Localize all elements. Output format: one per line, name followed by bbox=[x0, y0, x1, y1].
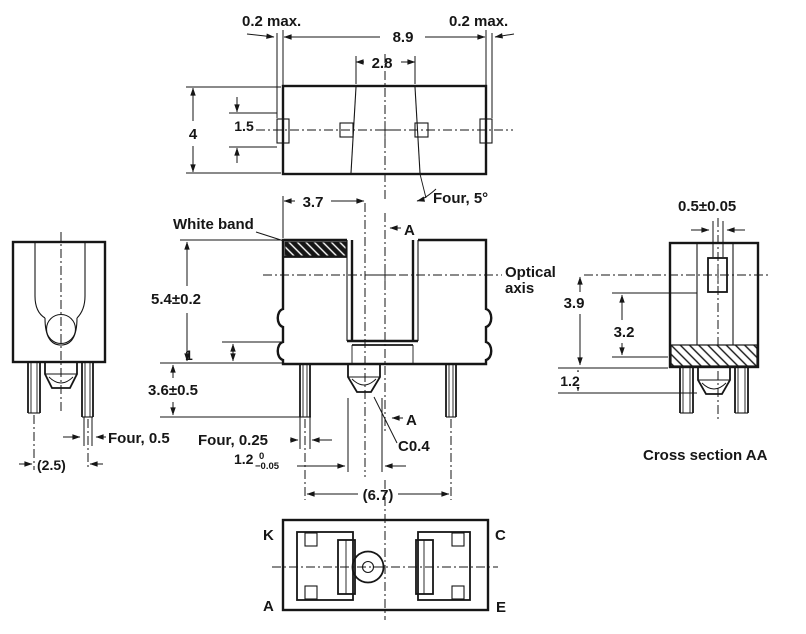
bottom-view: K C A E bbox=[263, 480, 506, 620]
dim-lead-width-front: Four, 0.25 bbox=[198, 417, 332, 449]
dim-lead-pitch: (2.5) bbox=[19, 415, 103, 473]
photomicrosensor-dimension-drawing: 8.9 0.2 max. 0.2 max. 2.8 4 bbox=[0, 0, 806, 634]
white-band-area bbox=[285, 242, 346, 256]
dim-axis-height: 3.9 bbox=[558, 277, 668, 368]
front-view: White band 3.7 A A C0.4 5.4±0.2 bbox=[148, 194, 556, 504]
dim-lead-span: (6.7) bbox=[305, 419, 451, 504]
side-body-outline bbox=[13, 242, 105, 362]
dim-axis-height-label: 3.9 bbox=[564, 295, 585, 312]
dim-step-label: 1 bbox=[185, 347, 193, 363]
section-marker-bottom-label: A bbox=[406, 412, 417, 429]
dim-lead-span-label: (6.7) bbox=[363, 487, 394, 504]
side-view: (2.5) Four, 0.5 bbox=[13, 232, 170, 473]
label-optical-axis-line2: axis bbox=[505, 280, 534, 297]
section-center-boss bbox=[698, 367, 730, 394]
dim-body-height: 5.4±0.2 bbox=[151, 240, 281, 361]
dim-band-height-label: 1.2 bbox=[560, 373, 580, 389]
side-leg-right bbox=[82, 362, 93, 417]
draft-line-extension bbox=[420, 174, 426, 198]
dim-overall-width-label: 8.9 bbox=[393, 29, 414, 46]
dim-lead-pitch-label: (2.5) bbox=[37, 457, 66, 473]
front-center-boss bbox=[348, 364, 380, 392]
dim-aperture-width: 0.5±0.05 bbox=[678, 198, 745, 230]
section-marker-bottom: A bbox=[392, 412, 417, 429]
dim-clearance-right-label: 0.2 max. bbox=[449, 13, 508, 30]
label-optical-axis: Optical axis bbox=[505, 264, 556, 297]
dim-body-height-label: 5.4±0.2 bbox=[151, 291, 201, 308]
front-leg-left bbox=[300, 364, 310, 417]
dim-clearance-left-label: 0.2 max. bbox=[242, 13, 301, 30]
dim-aperture-width-label: 0.5±0.05 bbox=[678, 198, 736, 215]
front-leg-right bbox=[446, 364, 456, 417]
terminal-label-A: A bbox=[263, 598, 274, 615]
dim-band-height: 1.2 bbox=[558, 370, 697, 393]
dim-boss-tol-lower: −0.05 bbox=[255, 461, 280, 472]
section-hatch-band bbox=[671, 345, 757, 366]
section-caption: Cross section AA bbox=[643, 447, 768, 464]
dim-clearance-right: 0.2 max. bbox=[449, 13, 514, 118]
note-draft-angle-label: Four, 5° bbox=[433, 190, 488, 207]
top-view: 8.9 0.2 max. 0.2 max. 2.8 4 bbox=[186, 13, 514, 207]
dim-lead-width-front-label: Four, 0.25 bbox=[198, 432, 268, 449]
section-marker-top: A bbox=[390, 222, 415, 239]
note-draft-angle: Four, 5° bbox=[417, 189, 488, 207]
terminal-label-E: E bbox=[496, 599, 506, 616]
dim-lead-width-side-label: Four, 0.5 bbox=[108, 430, 170, 447]
side-leg-left bbox=[28, 362, 40, 413]
dim-lead-length: 3.6±0.5 bbox=[148, 365, 311, 417]
dim-step: 1 bbox=[185, 342, 282, 363]
terminal-label-C: C bbox=[495, 527, 506, 544]
section-marker-top-label: A bbox=[404, 222, 415, 239]
dim-lead-width-side: Four, 0.5 bbox=[63, 417, 170, 447]
note-chamfer-label: C0.4 bbox=[398, 438, 430, 455]
section-leg-right bbox=[735, 367, 748, 413]
section-leg-left bbox=[680, 367, 693, 413]
dim-lead-length-label: 3.6±0.5 bbox=[148, 382, 198, 399]
dim-emitter-offset-label: 3.7 bbox=[303, 194, 324, 211]
drawing-canvas: 8.9 0.2 max. 0.2 max. 2.8 4 bbox=[0, 0, 806, 634]
dim-inner-height-label: 3.2 bbox=[614, 324, 635, 341]
dim-boss-nominal-label: 1.2 bbox=[234, 451, 254, 467]
dim-depth-label: 4 bbox=[189, 126, 198, 143]
label-optical-axis-line1: Optical bbox=[505, 264, 556, 281]
dim-emitter-offset: 3.7 bbox=[283, 194, 364, 238]
terminal-label-K: K bbox=[263, 527, 274, 544]
label-white-band-text: White band bbox=[173, 216, 254, 233]
bottom-module-left bbox=[297, 532, 355, 600]
cross-section-view: 0.5±0.05 3.9 3.2 1.2 Cross section AA bbox=[558, 198, 770, 464]
dim-window-height-label: 1.5 bbox=[234, 118, 254, 134]
dim-clearance-left: 0.2 max. bbox=[242, 13, 301, 118]
dim-slot-width-label: 2.8 bbox=[372, 55, 393, 72]
label-white-band: White band bbox=[173, 216, 284, 241]
bottom-module-right bbox=[416, 532, 470, 600]
